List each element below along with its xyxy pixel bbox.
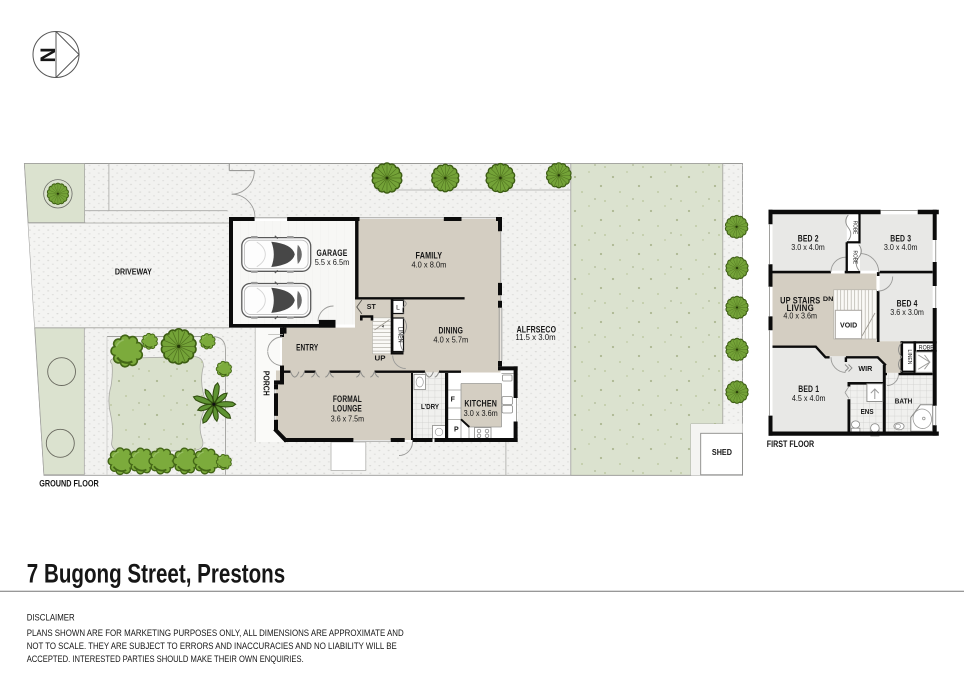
svg-text:FIRST FLOOR: FIRST FLOOR xyxy=(767,439,814,450)
svg-text:P: P xyxy=(454,427,459,434)
svg-text:3.0 x 4.0m: 3.0 x 4.0m xyxy=(884,242,918,252)
svg-text:LINEN: LINEN xyxy=(906,350,912,365)
svg-text:4.0 x 5.7m: 4.0 x 5.7m xyxy=(433,335,468,345)
svg-text:LOUNGE: LOUNGE xyxy=(333,404,362,414)
svg-text:4.0 x 8.0m: 4.0 x 8.0m xyxy=(411,259,446,269)
svg-text:ROBE: ROBE xyxy=(919,344,934,351)
svg-text:UP: UP xyxy=(375,354,386,363)
svg-text:5.5 x 6.5m: 5.5 x 6.5m xyxy=(315,257,350,267)
svg-text:WIR: WIR xyxy=(858,364,873,373)
svg-text:11.5 x 3.0m: 11.5 x 3.0m xyxy=(515,332,555,342)
svg-text:DRIVEWAY: DRIVEWAY xyxy=(115,268,153,277)
svg-text:ACCEPTED. INTERESTED PARTIES S: ACCEPTED. INTERESTED PARTIES SHOULD MAKE… xyxy=(27,654,304,664)
svg-text:ST: ST xyxy=(367,304,377,311)
svg-text:ROBE: ROBE xyxy=(851,251,857,265)
svg-text:4.5 x 4.0m: 4.5 x 4.0m xyxy=(792,393,826,403)
svg-text:ENS: ENS xyxy=(861,407,874,416)
svg-text:DISCLAIMER: DISCLAIMER xyxy=(27,612,75,622)
svg-text:7 Bugong Street, Prestons: 7 Bugong Street, Prestons xyxy=(27,559,285,589)
svg-text:L’DRY: L’DRY xyxy=(421,402,439,411)
svg-text:L: L xyxy=(396,305,400,312)
svg-text:LINEN: LINEN xyxy=(396,327,403,343)
svg-text:DN: DN xyxy=(823,296,834,303)
svg-text:ROBE: ROBE xyxy=(851,221,857,235)
svg-text:3.6 x 3.0m: 3.6 x 3.0m xyxy=(890,307,924,317)
svg-text:3.0 x 4.0m: 3.0 x 4.0m xyxy=(791,242,825,252)
svg-text:3.6 x 7.5m: 3.6 x 7.5m xyxy=(331,414,364,424)
svg-text:4.0 x 3.6m: 4.0 x 3.6m xyxy=(783,311,817,321)
svg-text:SHED: SHED xyxy=(712,448,732,457)
svg-text:BATH: BATH xyxy=(895,397,913,406)
svg-text:PORCH: PORCH xyxy=(262,371,271,396)
svg-text:KITCHEN: KITCHEN xyxy=(464,398,497,408)
svg-text:N: N xyxy=(35,47,58,62)
svg-text:NOT TO SCALE. THEY ARE SUBJECT: NOT TO SCALE. THEY ARE SUBJECT TO ERRORS… xyxy=(27,641,397,651)
svg-text:VOID: VOID xyxy=(840,322,857,329)
svg-text:PLANS SHOWN ARE FOR MARKETING: PLANS SHOWN ARE FOR MARKETING PURPOSES O… xyxy=(27,628,404,638)
svg-text:F: F xyxy=(451,396,456,403)
svg-text:FORMAL: FORMAL xyxy=(333,394,362,404)
svg-text:GROUND FLOOR: GROUND FLOOR xyxy=(39,478,99,489)
svg-text:3.0 x 3.6m: 3.0 x 3.6m xyxy=(464,408,498,418)
svg-text:ENTRY: ENTRY xyxy=(296,343,318,353)
